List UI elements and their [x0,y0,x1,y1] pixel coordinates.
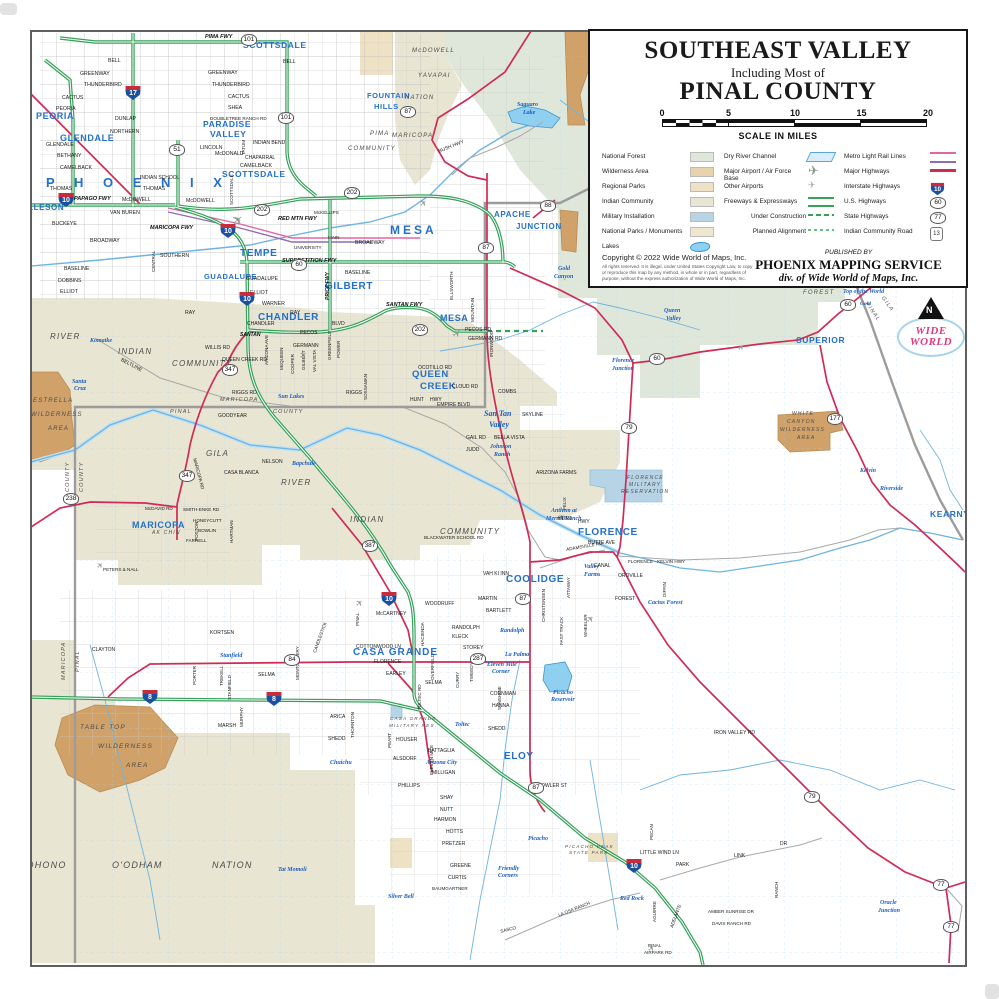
map-label-rd: GREENWAY [208,71,238,76]
legend-label: Indian Community [602,198,690,205]
light-rail-line-icon [930,152,956,163]
map-label-pl: Valley [666,316,681,322]
map-label-rd: ARIZONA AVE [265,335,270,365]
map-label-ci: HILLS [374,103,399,111]
map-label-pl: Farms [584,572,600,578]
map-label-rd: McDAVID RD [145,507,173,512]
map-label-rd: FLORENCE - KELVIN HWY [628,560,685,565]
legend-row: Indian Community Road13 [844,226,964,238]
legend-label: Military Installation [602,213,690,220]
map-label-rd: CASA BLANCA [224,471,259,476]
map-label-rd: BROADWAY [355,241,385,246]
map-label-ar: COUNTY [80,462,86,492]
map-label-ar: STATE PARK [569,851,609,856]
legend-row: Freeways & Expressways [724,196,842,208]
copyright-line: Copyright © 2022 Wide World of Maps, Inc… [602,253,746,262]
map-label-rd: McDONALD [215,152,244,157]
map-label-rd: McDOWELL [122,198,151,203]
map-label-rd: RAY [185,311,195,316]
logo-line2: WORLD [899,337,963,348]
legend-row: State Highways77 [844,211,964,223]
map-label-pl: Picacho [528,836,548,842]
map-label-ar: NATION [405,95,434,101]
legend-label: U.S. Highways [844,198,928,205]
legend-row: Interstate Highways10 [844,181,964,193]
publisher-division: div. of Wide World of Maps, Inc. [741,273,956,284]
map-label-rd: THOMAS [143,187,165,192]
wide-world-badge: WIDE WORLD [897,317,965,357]
legend-label: Regional Parks [602,183,690,190]
map-label-pl: Stanfield [220,653,242,659]
map-label-pl: Toltec [455,722,470,728]
dry-river-channel-icon [808,152,834,162]
map-label-rd: SASCO [500,926,517,934]
legend-swatch [690,227,714,237]
legend-label: Dry River Channel [724,153,806,160]
map-label-ci: ELOY [504,752,534,762]
map-label-pl: Sun Lakes [278,394,304,400]
map-label-rd: HACIENDA [421,622,426,646]
legend-label: National Parks / Monuments [602,228,690,235]
publisher-name: PHOENIX MAPPING SERVICE [741,257,956,273]
map-label-ar: PIMA [370,131,389,137]
map-label-rd: ELEVEN MILE [430,745,435,775]
map-label-rd: HOTTS [446,830,463,835]
interstate-shield-icon: 10 [382,592,397,606]
map-label-rd: ELLIOT [60,290,78,295]
map-label-rd: EMPIRE BLVD [437,403,470,408]
legend-row: National Forest [602,151,724,163]
airport-icon: ✈ [353,597,366,610]
map-label-pl: Komatke [90,338,112,344]
map-label-ar: WILDERNESS [31,412,83,418]
map-label-rd: DIFFIN [663,582,668,597]
legend-label: National Forest [602,153,690,160]
map-label-rd: CHRISTENSEN [542,589,547,622]
map-label-rd: TATUM [242,140,247,155]
title-legend-box: SOUTHEAST VALLEY Including Most of PINAL… [588,29,968,288]
other-airport-icon: ✈ [808,180,816,191]
map-label-rd: COOPER [291,354,296,374]
map-label-rd: CAMELBACK [240,164,272,169]
map-label-rd: CANDLESTICK [313,622,328,654]
map-label-rd: TREKELL [220,666,225,686]
map-label-rd: IRON VALLEY RD [714,731,755,736]
map-label-ar: MARICOPA [220,398,259,404]
map-label-rd: PORTER [193,666,198,685]
legend-label: Lakes [602,243,690,250]
map-label-rd: ALSDORF [393,757,417,762]
map-label-rd: KORTSEN [210,631,234,636]
map-label-ar: WHITE [792,412,814,417]
map-label-ar: PINAL [170,410,192,416]
legend-swatch [690,182,714,192]
airport-icon: ✈ [449,326,464,342]
map-label-rd: PEORIA [56,107,76,112]
map-label-pl: Johnson [490,444,511,450]
map-label-rd: BELLA VISTA [494,436,525,441]
map-label-ci: GILBERT [325,282,373,292]
map-label-pl: Eleven Mile [487,662,517,668]
map-label-rd: DOBBINS [58,279,81,284]
map-label-rd: RANCH [775,882,780,898]
scale-segment [860,119,927,127]
legend-label: Planned Alignment [724,228,806,235]
map-label-fw: SANTAN FWY [386,303,422,309]
indian-road-shield-icon: 13 [930,227,943,241]
map-label-rd: PRETZER [442,842,465,847]
map-label-rd: TOLTEC RD [418,684,423,710]
map-viewer-page: { "colors":{ "fwy":"#35a15a","hwy":"#cf2… [0,0,999,999]
scale-segment [662,119,729,127]
route-shield-icon: 347 [179,470,195,482]
map-label-pl: Ranch [494,452,510,458]
scale-segment [728,119,795,127]
legend-label: Metro Light Rail Lines [844,153,928,160]
map-label-rd: MARSH [218,724,236,729]
map-label-rd: DR [780,842,787,847]
map-label-pl: Oracle [880,900,897,906]
map-label-rd: AGUIRRE [653,901,658,922]
map-label-rd: MURPHY [240,707,245,727]
map-label-fw: PAPAGO FWY [74,197,111,203]
map-label-pl: Tat Momoli [278,867,307,873]
fine-print-line: purpose, without the express authorizati… [602,276,752,282]
map-label-pl: Cruz [74,386,86,392]
map-label-rd: OCOTILLO RD [418,366,452,371]
scrollbar-artifact-bottomright [985,984,999,999]
map-label-pl: Kelvin [860,468,876,474]
map-label-rd: POSTON [195,522,200,541]
lake-swatch [690,242,710,252]
legend-row: Dry River Channel [724,151,842,163]
map-label-rd: HWY [578,520,590,525]
legend-label: Freeways & Expressways [724,198,806,205]
map-label-rd: BOWLIN [198,529,216,534]
legend-row: U.S. Highways60 [844,196,964,208]
legend-row: Major Highways [844,166,964,178]
map-label-rd: HARTMAN [230,520,235,543]
map-label-pl: San Tan [484,410,512,418]
map-title: SOUTHEAST VALLEY [590,37,966,65]
map-label-rd: AMBER SUNRISE DR [708,910,754,915]
map-label-rd: MAIN [328,236,339,241]
scale-tick: 0 [659,108,664,118]
map-label-rd: HUNT [410,398,424,403]
map-label-ci: CREEK [420,382,456,392]
map-label-rd: McQUEEN [280,348,285,370]
map-label-rd: CURRY [456,672,461,688]
route-shield-icon: 60 [649,353,665,365]
map-label-rd: ARIZONA FARMS [536,471,577,476]
map-label-rd: PETERS & NALL [103,568,139,573]
map-label-rd: BLACKWATER SCHOOL RD [424,536,484,541]
map-label-rd: SHAY [440,796,453,801]
map-label-rd: BELL [283,60,296,65]
route-shield-icon: 87 [515,593,531,605]
map-label-ar: MARICOPA [392,133,433,139]
scale-tick: 5 [726,108,731,118]
map-label-rd: GREENE [450,864,471,869]
map-label-ar: MARICOPA [62,641,68,680]
map-label-rd: HOUSER [396,738,417,743]
map-label-ar: GILA [206,450,229,458]
map-label-rd: KLECK [452,635,468,640]
map-label-rd: THUNDERBIRD [212,83,250,88]
map-label-rd: CENTRAL [152,251,157,272]
map-label-rd: SKYLINE [522,413,543,418]
map-label-rd: VAN BUREN [110,211,140,216]
map-label-pl: Bapchule [292,461,316,467]
map-label-ar: COUNTY [66,462,72,492]
published-by-label: PUBLISHED BY [741,249,956,256]
route-shield-icon: 87 [478,242,494,254]
map-label-rd: SUNSHINE [498,686,503,710]
map-label-rd: EARLEY [386,672,406,677]
map-label-rd: VAH KI INN [483,572,509,577]
map-label-ar: AREA [126,763,149,770]
airport-icon: ✈ [417,197,430,210]
map-label-pl: Friendly [498,866,519,872]
map-label-ci: MESA [440,314,468,323]
map-label-rd: LINK [734,854,745,859]
map-label-ar: PINAL [863,302,880,323]
legend-swatch [690,212,714,222]
map-label-rd: FOREST [615,597,635,602]
map-label-ci: APACHE [494,211,531,219]
map-label-rd: CLAYTON [92,648,115,653]
map-label-pl: Reservoir [551,697,575,703]
map-label-rd: COMBS [498,390,516,395]
map-label-pl: La Palma [505,652,529,658]
map-label-ar: WILDERNESS [780,428,825,433]
scale-tick: 15 [856,108,866,118]
map-label-ar: PICACHO PEAK [565,845,614,850]
map-label-pl: Valley [489,421,509,429]
map-label-pl: Lake [523,110,535,116]
map-label-rd: BROADWAY [90,239,120,244]
map-label-ci: TEMPE [240,249,277,259]
map-label-ar: INDIAN [350,516,384,524]
legend-row: Wilderness Area [602,166,724,178]
major-highway-line-icon [930,167,956,172]
map-label-rd: PHILLIPS [398,784,420,789]
legend-row: Indian Community [602,196,724,208]
map-label-rd: ADAMSVILLE RD [566,542,603,553]
map-label-ar: COMMUNITY [348,146,396,152]
map-label-rd: HUNT [558,517,572,522]
map-label-rd: ARICA [330,715,345,720]
map-label-rd: CACTUS [62,96,83,101]
map-label-pl: Chuichu [330,760,352,766]
map-label-rd: AIRPARK RD [644,951,672,956]
map-label-ar: RIVER [281,479,311,487]
route-shield-icon: 287 [470,653,486,665]
map-label-rd: BETHANY [57,154,82,159]
map-label-rd: FAST TRACK [560,617,565,645]
legend-label: Interstate Highways [844,183,928,190]
map-label-rd: ELLSWORTH [450,271,455,300]
scale-segment [794,119,861,127]
map-label-rd: McCARTNEY [376,612,406,617]
map-label-rd: WILLIS RD [205,346,230,351]
map-label-ci: QUEEN [412,370,449,380]
publisher-block: PUBLISHED BY PHOENIX MAPPING SERVICE div… [741,249,956,284]
map-label-rd: INDIAN BEND [253,141,285,146]
map-label-ci: PEORIA [36,112,74,121]
map-label-ci: VALLEY [210,130,247,139]
map-label-ar: COUNTY [273,410,303,416]
map-label-ar: AREA [797,436,815,441]
legend-swatch [690,167,714,177]
map-label-rd: STOREY [463,646,483,651]
map-label-ar: McDOWELL [412,48,455,54]
route-shield-icon: 87 [528,782,544,794]
route-shield-icon: 88 [540,200,556,212]
map-label-ar: MILITARY [629,483,661,488]
route-shield-icon: 79 [804,791,820,803]
map-label-pl: Junction [878,908,900,914]
map-label-rd: THUNDERBIRD [84,83,122,88]
map-label-rd: SMITH-ENKE RD [183,508,219,513]
map-label-rd: GAIL RD [466,436,486,441]
legend-swatch [690,197,714,207]
map-label-rd: FLORENCE [374,660,401,665]
map-label-pl: Saguaro [517,102,538,108]
map-label-pl: Corners [498,873,518,879]
map-label-rd: CANAL [594,564,611,569]
route-shield-icon: 387 [362,540,378,552]
map-label-ci: KEARNY [930,510,967,519]
map-label-rd: RIGGS [346,391,362,396]
map-label-rd: GOODYEAR [218,414,247,419]
legend-label: Other Airports [724,183,806,190]
map-label-rd: OROVILLE [618,574,643,579]
map-label-rd: LA OSA RANCH [558,901,591,918]
map-label-fw: PIMA FWY [205,35,232,41]
legend-row: Major Airport / Air Force Base✈ [724,166,842,178]
map-label-pl: Gold [558,266,570,272]
map-label-pl: Cactus Forest [648,600,683,606]
map-label-rd: McDOWELL [186,199,215,204]
map-label-rd: CHAPARRAL [245,156,275,161]
map-label-rd: TWEEDY [470,662,475,682]
map-label-pl: Junction [612,366,634,372]
map-title-2: PINAL COUNTY [590,78,966,106]
map-label-rd: DAVIS RANCH RD [712,922,751,927]
map-label-rd: SCOTTSDALE [230,174,235,205]
scale-caption: SCALE IN MILES [590,131,966,141]
legend-row: National Parks / Monuments [602,226,724,238]
map-label-pl: Florence [612,358,634,364]
map-label-pl: Corner [492,669,510,675]
route-shield-icon: 202 [412,324,428,336]
interstate-shield-icon: 10 [221,224,236,238]
legend-row: Lakes [602,241,724,253]
map-label-ar: RIVER [50,333,80,341]
map-label-rd: RAY [290,311,300,316]
map-label-rd: IRONWOOD [490,331,495,357]
airport-icon: ✈ [736,342,747,353]
map-label-rd: BELL [108,59,121,64]
legend-row: Military Installation [602,211,724,223]
map-label-ar: CANYON [787,420,816,425]
map-label-rd: CAMELBACK [60,166,92,171]
map-label-ci: MESA [390,224,437,236]
map-label-rd: PARK [676,863,689,868]
planned-alignment-line-icon [808,227,834,231]
legend-label: Indian Community Road [844,228,928,235]
route-shield-icon: 60 [840,299,856,311]
interstate-shield-icon: 8 [267,692,282,706]
map-label-rd: WARNER [262,302,285,307]
map-label-fw: RED MTN FWY [278,217,317,223]
route-shield-icon: 51 [169,144,185,156]
interstate-shield-icon: 8 [143,690,158,704]
map-label-fw: PRICE FWY [326,272,331,300]
map-label-rd: GERMANN RD [468,337,502,342]
legend-row: Regional Parks [602,181,724,193]
map-label-ar: GILA [879,296,893,313]
us-state-shield-icon: 60 [930,197,946,209]
map-label-rd: POWER [337,341,342,358]
under-construction-line-icon [808,212,834,216]
interstate-shield-icon: 10 [59,193,74,207]
map-label-rd: WOODRUFF [425,602,454,607]
legend-label: Major Airport / Air Force Base [724,168,806,182]
route-shield-icon: 60 [291,259,307,271]
map-label-pl: Canyon [554,274,573,280]
legend-label: Wilderness Area [602,168,690,175]
map-label-rd: VAL VISTA [313,350,318,372]
route-shield-icon: 84 [284,654,300,666]
map-label-fw: MARICOPA FWY [150,226,193,232]
map-label-ar: AREA [48,426,69,432]
map-label-rd: SHEA [228,106,242,111]
map-label-ar: YAVAPAI [418,73,451,79]
map-label-rd: SELMA [425,681,442,686]
map-label-rd: GREENWAY [80,72,110,77]
map-label-rd: ATTAWAY [567,577,572,598]
interstate-shield-icon: 10 [240,292,255,306]
map-label-ar: WILDERNESS [98,744,153,751]
map-label-rd: LITTLE WIND LN [640,851,679,856]
map-label-rd: PECOS [300,331,318,336]
us-state-shield-icon: 77 [930,212,946,224]
map-label-rd: MARTIN [478,597,497,602]
route-shield-icon: 79 [621,422,637,434]
route-shield-icon: 77 [933,879,949,891]
map-label-rd: NUTT [440,808,453,813]
map-label-pl: Picacho [553,690,573,696]
map-label-rd: RIGGS RD [232,391,257,396]
map-label-ar: TOHONO [30,861,67,870]
map-label-rd: NORTHERN [110,130,139,135]
map-label-ar: TABLE TOP [80,725,126,732]
map-label-rd: THORNTON [351,712,356,738]
scale-tick: 10 [790,108,800,118]
map-label-pl: Santa [72,379,86,385]
map-label-pl: Queen [664,308,680,314]
map-label-rd: GREENFIELD [328,331,333,360]
route-shield-icon: 101 [241,34,257,46]
map-label-rd: INDIAN SCHOOL [140,176,179,181]
map-label-rd: GUADALUPE [246,277,278,282]
map-label-ar: O'ODHAM [112,861,163,870]
map-label-rd: SHEDD [328,737,346,742]
map-label-ar: CASA GRANDE [390,717,436,722]
map-label-ci: SUPERIOR [796,336,845,345]
